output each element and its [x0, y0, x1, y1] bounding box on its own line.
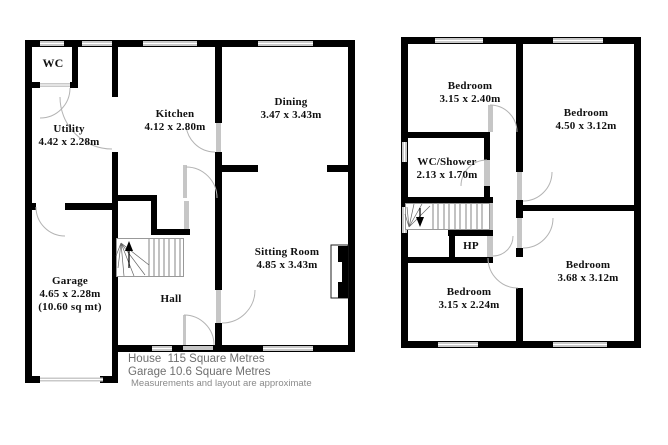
room-dims: 3.68 x 3.12m — [557, 272, 618, 285]
room-label-kitchen: Kitchen 4.12 x 2.80m — [144, 108, 205, 134]
room-name: Dining — [260, 96, 321, 109]
garage-area-text: Garage 10.6 Square Metres — [128, 366, 312, 379]
room-label-bedroom-back-right: Bedroom 3.68 x 3.12m — [557, 259, 618, 285]
room-label-bedroom-back-left: Bedroom 3.15 x 2.24m — [438, 286, 499, 312]
room-area: (10.60 sq mt) — [38, 301, 101, 314]
room-dims: 2.13 x 1.70m — [416, 169, 477, 182]
room-name: Bedroom — [557, 259, 618, 272]
floorplan-canvas: WC Utility 4.42 x 2.28m Kitchen 4.12 x 2… — [0, 0, 668, 445]
floorplan-drawing — [0, 0, 668, 445]
room-name: HP — [463, 240, 479, 253]
room-dims: 4.12 x 2.80m — [144, 121, 205, 134]
room-name: Kitchen — [144, 108, 205, 121]
room-name: Bedroom — [438, 286, 499, 299]
disclaimer-text: Measurements and layout are approximate — [128, 378, 312, 390]
room-dims: 3.15 x 2.40m — [439, 93, 500, 106]
room-dims: 4.85 x 3.43m — [255, 259, 319, 272]
room-name: WC — [42, 57, 63, 70]
room-label-utility: Utility 4.42 x 2.28m — [38, 123, 99, 149]
first-floor-windows — [402, 38, 607, 347]
first-floor-window-midlines — [405, 41, 608, 345]
room-label-hp: HP — [463, 240, 479, 253]
footer-notes: House 115 Square Metres Garage 10.6 Squa… — [128, 353, 312, 390]
room-dims: 3.15 x 2.24m — [438, 299, 499, 312]
ground-floor-plan — [25, 40, 355, 383]
room-name: Garage — [38, 275, 101, 288]
fireplace — [331, 245, 348, 298]
house-area-text: House 115 Square Metres — [128, 353, 312, 366]
room-name: Utility — [38, 123, 99, 136]
room-label-wc: WC — [42, 57, 63, 70]
room-dims: 3.47 x 3.43m — [260, 109, 321, 122]
room-name: Bedroom — [555, 107, 616, 120]
room-name: Hall — [161, 293, 182, 306]
ground-floor-windows — [40, 41, 313, 382]
ground-floor-walls — [25, 40, 355, 383]
room-label-bedroom-right: Bedroom 4.50 x 3.12m — [555, 107, 616, 133]
ground-floor-window-midlines — [40, 44, 313, 380]
room-dims: 4.50 x 3.12m — [555, 120, 616, 133]
room-label-hall: Hall — [161, 293, 182, 306]
first-floor-plan — [401, 37, 641, 348]
room-label-bedroom-front-left: Bedroom 3.15 x 2.40m — [439, 80, 500, 106]
room-dims: 4.42 x 2.28m — [38, 136, 99, 149]
room-label-wc-shower: WC/Shower 2.13 x 1.70m — [416, 156, 477, 182]
ground-floor-stairs — [116, 239, 184, 277]
room-name: WC/Shower — [416, 156, 477, 169]
first-floor-stairs — [405, 204, 490, 230]
room-label-sitting-room: Sitting Room 4.85 x 3.43m — [255, 246, 319, 272]
room-label-garage: Garage 4.65 x 2.28m (10.60 sq mt) — [38, 275, 101, 314]
room-name: Bedroom — [439, 80, 500, 93]
room-label-dining: Dining 3.47 x 3.43m — [260, 96, 321, 122]
room-dims: 4.65 x 2.28m — [38, 288, 101, 301]
room-name: Sitting Room — [255, 246, 319, 259]
